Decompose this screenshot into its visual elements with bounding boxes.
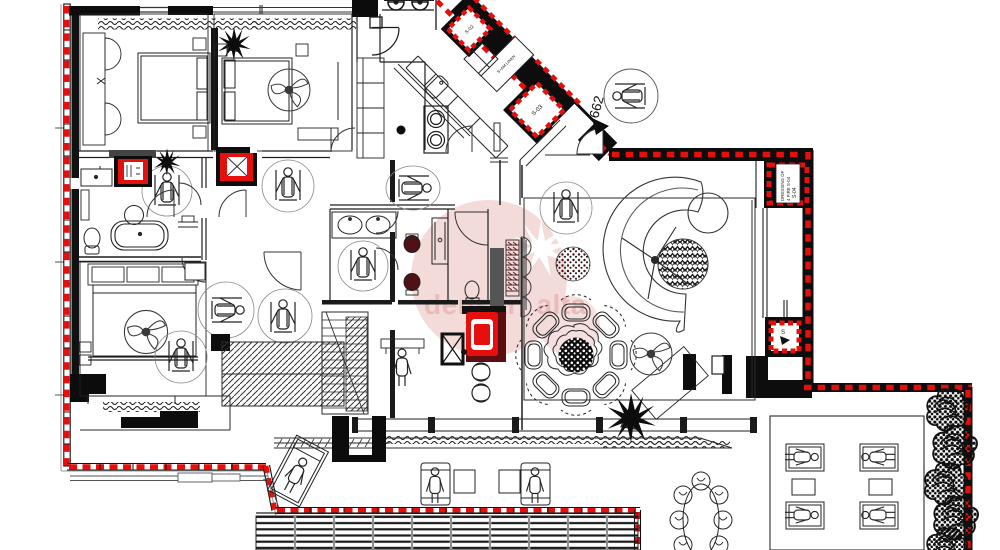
svg-text:S: S xyxy=(781,330,785,336)
svg-text:S-04: S-04 xyxy=(792,187,798,198)
svg-text:4 FIRE S-04: 4 FIRE S-04 xyxy=(786,176,791,201)
svg-text:DRESSING OF: DRESSING OF xyxy=(780,170,785,201)
